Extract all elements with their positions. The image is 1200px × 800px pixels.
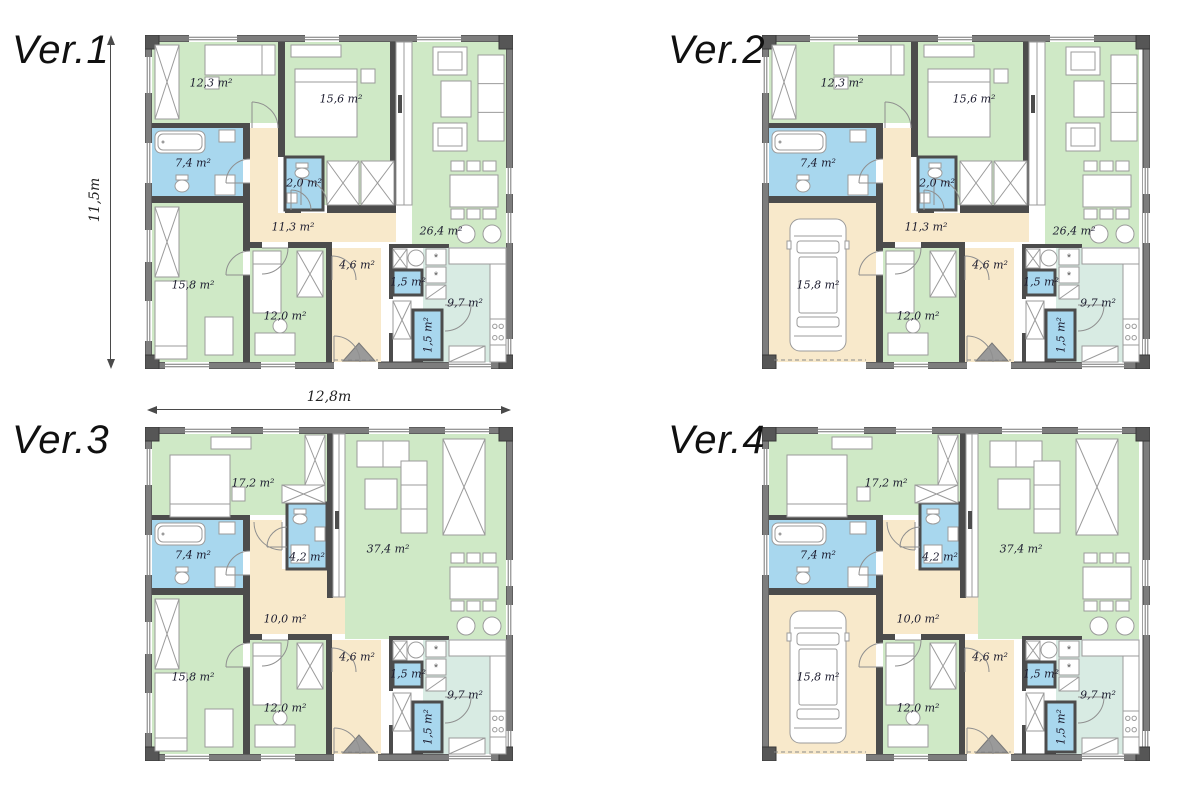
plan-title-ver2: Ver.2 <box>668 28 766 73</box>
room-area-label: 11,3 m² <box>905 221 948 234</box>
svg-text:*: * <box>434 270 439 282</box>
room-area-label: 12,0 m² <box>897 310 940 323</box>
room-area-label: 17,2 m² <box>232 477 275 490</box>
room-area-label: 10,0 m² <box>897 613 940 626</box>
svg-text:*: * <box>434 644 439 656</box>
room-area-label: 1,5 m² <box>1055 709 1068 745</box>
dimension-arrow-left-icon <box>147 406 157 414</box>
dimension-label-height: 11,5m <box>87 178 103 222</box>
floor-plan-ver3: **17,2 m²37,4 m²7,4 m²4,2 m²10,0 m²15,8 … <box>145 427 513 761</box>
room-area-label: 26,4 m² <box>420 225 463 238</box>
room-area-label: 7,4 m² <box>175 157 211 170</box>
room-area-label: 4,2 m² <box>922 551 958 564</box>
room-area-label: 10,0 m² <box>264 613 307 626</box>
room-area-label: 9,7 m² <box>447 689 483 702</box>
floor-plans-canvas: 11,5m 12,8m **12,3 m²15,6 m²26,4 m²7,4 m… <box>0 0 1200 800</box>
room-area-label: 11,3 m² <box>272 221 315 234</box>
room-area-label: 15,6 m² <box>320 93 363 106</box>
svg-text:*: * <box>1067 644 1072 656</box>
room-area-label: 12,3 m² <box>190 77 233 90</box>
room-area-label: 1,5 m² <box>390 276 426 289</box>
room-area-label: 15,8 m² <box>797 671 840 684</box>
room-area-label: 4,6 m² <box>339 259 375 272</box>
svg-text:*: * <box>434 252 439 264</box>
room-area-label: 15,8 m² <box>172 279 215 292</box>
svg-text:*: * <box>1067 252 1072 264</box>
plan-drawing-ver4: ** <box>762 427 1150 761</box>
svg-text:*: * <box>1067 270 1072 282</box>
plan-title-ver1: Ver.1 <box>12 28 110 73</box>
room-area-label: 12,0 m² <box>264 702 307 715</box>
room-area-label: 37,4 m² <box>1000 543 1043 556</box>
room-area-label: 12,0 m² <box>897 702 940 715</box>
room-area-label: 9,7 m² <box>447 297 483 310</box>
room-area-label: 4,2 m² <box>289 551 325 564</box>
floor-plan-ver4: **17,2 m²37,4 m²7,4 m²4,2 m²10,0 m²15,8 … <box>762 427 1150 761</box>
dimension-line-horizontal <box>150 409 508 410</box>
room-area-label: 1,5 m² <box>422 709 435 745</box>
room-area-label: 15,8 m² <box>797 279 840 292</box>
plan-title-ver4: Ver.4 <box>668 418 766 463</box>
room-area-label: 12,0 m² <box>264 310 307 323</box>
room-area-label: 15,8 m² <box>172 671 215 684</box>
svg-text:*: * <box>1067 662 1072 674</box>
room-area-label: 1,5 m² <box>1023 276 1059 289</box>
floor-plan-ver2: **12,3 m²15,6 m²26,4 m²7,4 m²2,0 m²11,3 … <box>762 35 1150 369</box>
room-area-label: 2,0 m² <box>919 177 955 190</box>
room-area-label: 12,3 m² <box>821 77 864 90</box>
room-area-label: 1,5 m² <box>390 668 426 681</box>
room-area-label: 2,0 m² <box>286 177 322 190</box>
floor-plan-ver1: **12,3 m²15,6 m²26,4 m²7,4 m²2,0 m²11,3 … <box>145 35 513 369</box>
room-area-label: 4,6 m² <box>972 259 1008 272</box>
room-area-label: 9,7 m² <box>1080 297 1116 310</box>
room-area-label: 9,7 m² <box>1080 689 1116 702</box>
room-area-label: 26,4 m² <box>1053 225 1096 238</box>
room-area-label: 15,6 m² <box>953 93 996 106</box>
room-area-label: 4,6 m² <box>339 651 375 664</box>
plan-title-ver3: Ver.3 <box>12 418 110 463</box>
room-area-label: 1,5 m² <box>1055 317 1068 353</box>
dimension-arrow-down-icon <box>107 359 115 369</box>
plan-drawing-ver3: ** <box>145 427 513 761</box>
dimension-label-width: 12,8m <box>307 389 351 405</box>
room-area-label: 1,5 m² <box>1023 668 1059 681</box>
room-area-label: 37,4 m² <box>367 543 410 556</box>
room-area-label: 7,4 m² <box>175 549 211 562</box>
room-area-label: 7,4 m² <box>800 157 836 170</box>
dimension-line-vertical <box>110 38 111 364</box>
room-area-label: 4,6 m² <box>972 651 1008 664</box>
svg-text:*: * <box>434 662 439 674</box>
room-area-label: 1,5 m² <box>422 317 435 353</box>
dimension-arrow-right-icon <box>501 406 511 414</box>
room-area-label: 7,4 m² <box>800 549 836 562</box>
room-area-label: 17,2 m² <box>865 477 908 490</box>
